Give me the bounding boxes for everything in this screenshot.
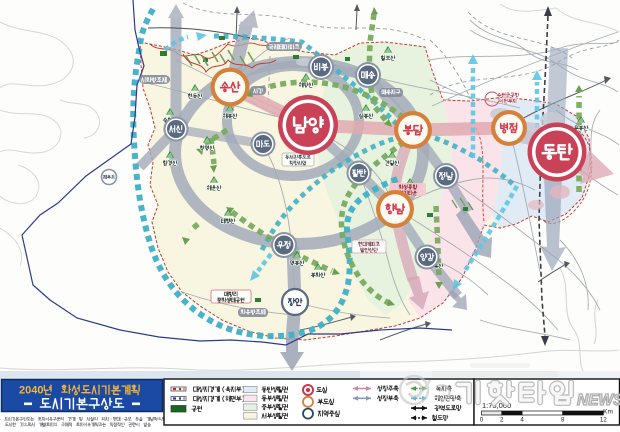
svg-text:8: 8 bbox=[561, 417, 565, 424]
svg-text:0: 0 bbox=[480, 417, 484, 424]
svg-text:2040: 2040 bbox=[19, 385, 43, 397]
svg-text:4: 4 bbox=[520, 417, 524, 424]
svg-text:12: 12 bbox=[600, 417, 608, 424]
svg-text:2: 2 bbox=[500, 417, 504, 424]
svg-text:NEWS: NEWS bbox=[577, 392, 620, 409]
svg-text:Km: Km bbox=[603, 409, 613, 416]
